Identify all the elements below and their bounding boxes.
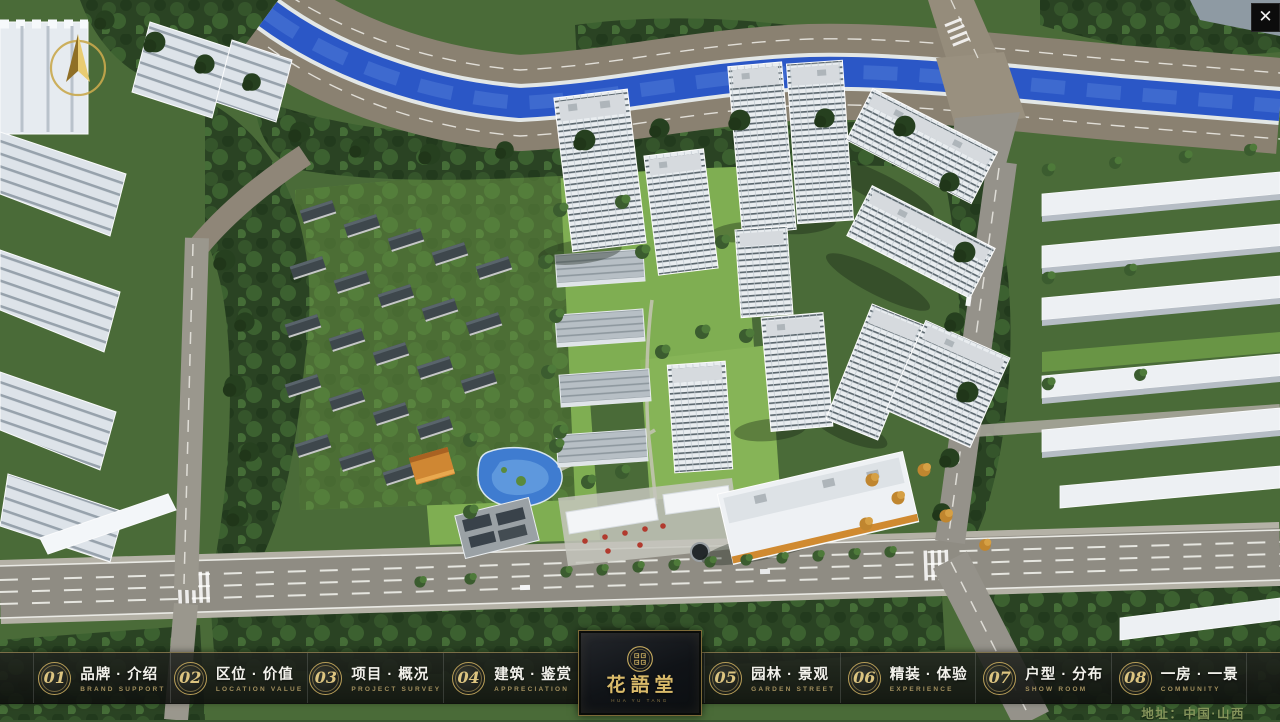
lake <box>478 448 562 507</box>
nav-sublabel: BRAND SUPPORT <box>80 686 165 693</box>
nav-item-architecture[interactable]: 04 建筑 · 鉴赏 APPRECIATION <box>443 653 580 703</box>
nav-label: 品牌 · 介绍 <box>80 663 158 684</box>
nav-item-garden[interactable]: 05 园林 · 景观 GARDEN STREET <box>704 653 840 703</box>
nav-sublabel: PROJECT SURVEY <box>351 686 441 693</box>
nav-sublabel: GARDEN STREET <box>751 686 835 693</box>
nav-sublabel: LOCATION VALUE <box>216 686 304 693</box>
nav-item-floorplans[interactable]: 07 户型 · 分布 SHOW ROOM <box>975 653 1111 703</box>
nav-sublabel: SHOW ROOM <box>1025 686 1087 693</box>
logo-panel: 花語堂 HUA YU TANG <box>578 630 702 716</box>
nav-item-interior[interactable]: 06 精装 · 体验 EXPERIENCE <box>840 653 976 703</box>
address-text: 地址：中国·山西 <box>1141 703 1245 722</box>
nav-sublabel: EXPERIENCE <box>890 686 954 693</box>
nav-item-views[interactable]: 08 一房 · 一景 COMMUNITY <box>1111 653 1248 703</box>
nav-badge-02: 02 <box>174 662 207 695</box>
close-button[interactable]: ✕ <box>1251 3 1280 32</box>
nav-label: 项目 · 概况 <box>351 663 429 684</box>
nav-badge-07: 07 <box>983 662 1016 695</box>
nav-badge-01: 01 <box>38 662 71 695</box>
nav-badge-03: 03 <box>309 662 342 695</box>
round-gold-seal-icon <box>625 644 655 674</box>
nav-group-left: 01 品牌 · 介绍 BRAND SUPPORT 02 区位 · 价值 LOCA… <box>33 653 580 703</box>
nav-item-brand[interactable]: 01 品牌 · 介绍 BRAND SUPPORT <box>33 653 170 703</box>
nav-label: 园林 · 景观 <box>751 663 829 684</box>
nav-label: 区位 · 价值 <box>216 663 294 684</box>
nav-badge-05: 05 <box>709 662 742 695</box>
logo-subtitle: HUA YU TANG <box>611 698 669 703</box>
nav-group-right: 05 园林 · 景观 GARDEN STREET 06 精装 · 体验 EXPE… <box>704 653 1247 703</box>
nav-badge-08: 08 <box>1119 662 1152 695</box>
nav-sublabel: COMMUNITY <box>1161 686 1221 693</box>
nav-label: 一房 · 一景 <box>1161 663 1239 684</box>
nav-badge-04: 04 <box>452 662 485 695</box>
nav-label: 建筑 · 鉴赏 <box>494 663 572 684</box>
nav-label: 户型 · 分布 <box>1025 663 1103 684</box>
nav-item-location[interactable]: 02 区位 · 价值 LOCATION VALUE <box>170 653 307 703</box>
aerial-masterplan-render[interactable] <box>0 0 1280 720</box>
scene-svg <box>0 0 1280 720</box>
nav-sublabel: APPRECIATION <box>494 686 569 693</box>
nav-label: 精装 · 体验 <box>890 663 968 684</box>
logo-title: 花語堂 <box>601 676 678 695</box>
nav-item-project[interactable]: 03 项目 · 概况 PROJECT SURVEY <box>307 653 444 703</box>
nav-badge-06: 06 <box>848 662 881 695</box>
